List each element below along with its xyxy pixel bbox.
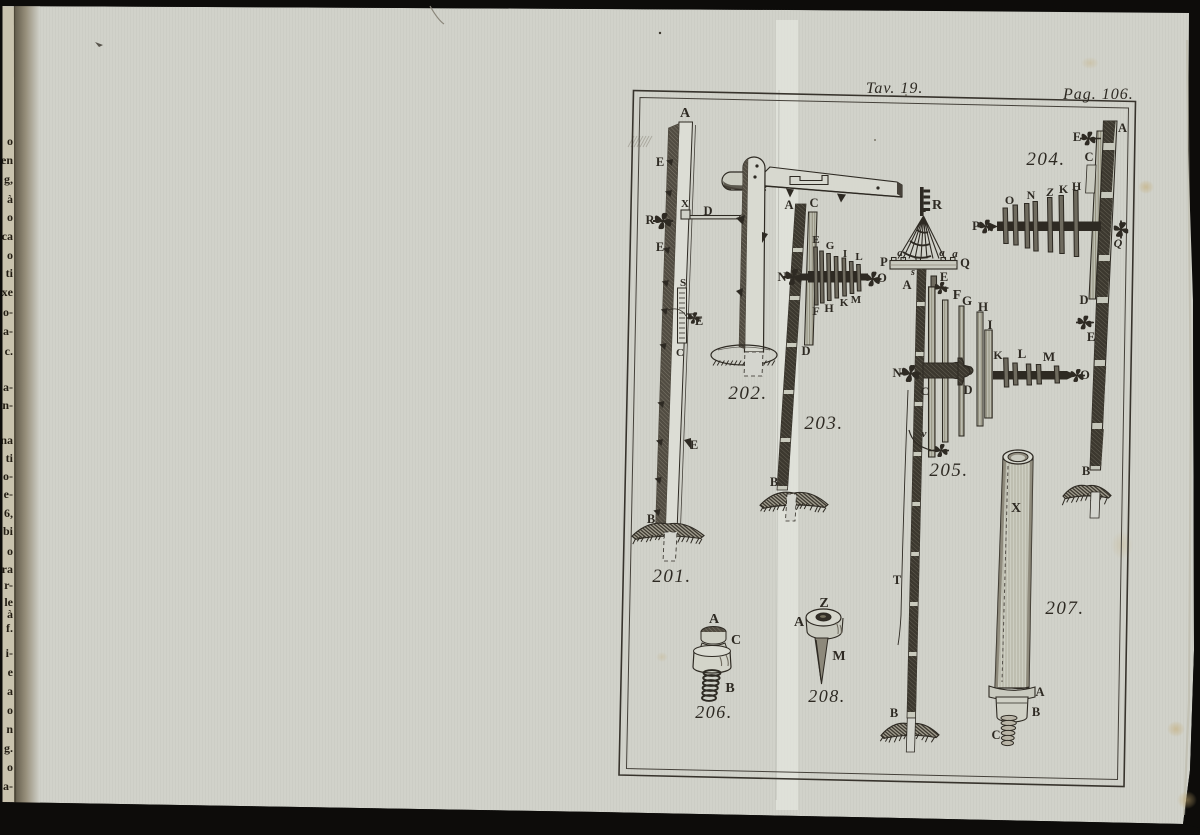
svg-text:n-: n-: [2, 398, 13, 412]
svg-text:C: C: [731, 633, 741, 648]
svg-text:C: C: [676, 347, 684, 359]
svg-text:Pag. 106.: Pag. 106.: [1062, 86, 1134, 103]
svg-text:E: E: [656, 240, 664, 254]
svg-text:N: N: [777, 270, 786, 284]
svg-text:K: K: [993, 348, 1003, 362]
svg-text:Q: Q: [1114, 236, 1123, 250]
svg-text:o: o: [7, 544, 13, 558]
svg-text:B: B: [1082, 464, 1090, 478]
svg-text:C: C: [809, 196, 818, 210]
svg-text:L: L: [1018, 346, 1027, 361]
svg-text:S: S: [680, 277, 686, 289]
svg-text:Tav. 19.: Tav. 19.: [866, 80, 923, 97]
svg-text:G: G: [826, 240, 835, 252]
svg-text:r-: r-: [4, 578, 13, 592]
svg-text:A: A: [902, 278, 911, 292]
svg-text:Q: Q: [960, 256, 970, 270]
svg-text:E: E: [940, 270, 948, 284]
svg-text:ti: ti: [6, 266, 14, 280]
svg-text:a: a: [939, 247, 945, 259]
svg-text:g.: g.: [4, 741, 13, 755]
svg-text:208.: 208.: [808, 686, 846, 706]
svg-text:G: G: [962, 293, 972, 308]
svg-text:o: o: [7, 760, 13, 774]
svg-text:a-: a-: [3, 779, 13, 793]
svg-text:c.: c.: [5, 344, 13, 358]
svg-text:D: D: [703, 204, 712, 218]
svg-text:ca: ca: [2, 229, 13, 243]
svg-text:X: X: [681, 198, 689, 210]
svg-text:ti: ti: [6, 451, 14, 465]
svg-text:O: O: [1005, 193, 1014, 207]
svg-text:A: A: [1035, 685, 1044, 699]
svg-text:O: O: [877, 271, 887, 285]
svg-text:E: E: [656, 155, 664, 169]
svg-text:L: L: [855, 251, 862, 263]
svg-text:202.: 202.: [728, 383, 767, 404]
svg-text:E: E: [812, 234, 819, 246]
svg-text:o: o: [7, 248, 13, 262]
svg-text:M: M: [1043, 349, 1055, 364]
svg-text:à: à: [7, 607, 13, 621]
svg-text:à: à: [7, 192, 13, 206]
svg-text:205.: 205.: [929, 460, 968, 481]
svg-text:e: e: [8, 665, 14, 679]
svg-text:I: I: [843, 248, 847, 260]
svg-text:Z: Z: [1045, 185, 1054, 199]
svg-text:A: A: [784, 198, 793, 212]
svg-text:B: B: [770, 475, 778, 489]
svg-text:g,: g,: [4, 172, 13, 186]
svg-text:A: A: [680, 106, 691, 121]
svg-text:f.: f.: [6, 621, 13, 635]
svg-text:o: o: [7, 210, 13, 224]
svg-text:6,: 6,: [4, 506, 13, 520]
svg-text:bi: bi: [3, 524, 14, 538]
svg-text:R: R: [932, 198, 943, 213]
svg-text:O: O: [1080, 368, 1090, 382]
svg-text:a: a: [7, 684, 13, 698]
svg-text:D: D: [801, 344, 810, 358]
svg-text:P: P: [972, 219, 980, 233]
svg-text:H: H: [824, 301, 834, 315]
svg-text:M: M: [851, 294, 862, 306]
svg-text:e-: e-: [4, 487, 13, 501]
svg-text:P: P: [880, 255, 888, 269]
svg-text:B: B: [890, 706, 898, 720]
svg-text:Z: Z: [819, 596, 828, 611]
svg-text:N: N: [1027, 188, 1036, 202]
svg-text:s: s: [910, 267, 915, 278]
svg-text:I: I: [987, 317, 992, 332]
svg-text:o: o: [7, 134, 13, 148]
svg-text:204.: 204.: [1026, 149, 1065, 170]
svg-text:X: X: [1011, 501, 1021, 516]
svg-text:B: B: [725, 681, 734, 696]
svg-text:D: D: [1079, 293, 1088, 307]
svg-text:F: F: [953, 288, 962, 303]
svg-text:C: C: [921, 384, 930, 398]
svg-text:201.: 201.: [652, 566, 691, 587]
svg-text:R: R: [645, 213, 655, 227]
svg-text:C: C: [991, 728, 1000, 742]
svg-text:xe: xe: [2, 285, 14, 299]
svg-text:a-: a-: [3, 380, 13, 394]
svg-text:207.: 207.: [1045, 598, 1084, 619]
svg-text:203.: 203.: [804, 413, 843, 434]
svg-text:E: E: [1087, 330, 1095, 344]
svg-text:A: A: [794, 615, 805, 630]
svg-text:D: D: [963, 383, 972, 397]
svg-text:ra: ra: [2, 562, 13, 576]
svg-text:a: a: [897, 247, 903, 259]
svg-text:v: v: [922, 428, 927, 440]
svg-text:M: M: [832, 649, 845, 664]
svg-text:H: H: [978, 299, 988, 314]
svg-text:N: N: [892, 366, 901, 380]
svg-text:o-: o-: [3, 305, 13, 319]
svg-text:a: a: [952, 248, 958, 260]
svg-text:a-: a-: [3, 324, 13, 338]
svg-text:n: n: [6, 722, 13, 736]
svg-text:en: en: [1, 153, 13, 167]
svg-text:H: H: [1072, 179, 1082, 193]
svg-text:o-: o-: [3, 469, 13, 483]
svg-text:K: K: [840, 297, 849, 309]
svg-text:E: E: [690, 438, 698, 452]
svg-text:F: F: [812, 304, 819, 318]
svg-text:A: A: [709, 612, 720, 627]
svg-text:K: K: [1059, 182, 1069, 196]
svg-text:B: B: [1032, 705, 1040, 719]
svg-text:E: E: [1073, 130, 1081, 144]
svg-text:E: E: [695, 314, 703, 328]
svg-text:B: B: [647, 512, 655, 526]
svg-text:206.: 206.: [695, 702, 733, 722]
svg-text:T: T: [893, 573, 902, 587]
svg-text:C: C: [1084, 150, 1093, 164]
svg-text:o: o: [7, 703, 13, 717]
svg-text:i-: i-: [6, 646, 13, 660]
svg-text:A: A: [1118, 121, 1127, 135]
